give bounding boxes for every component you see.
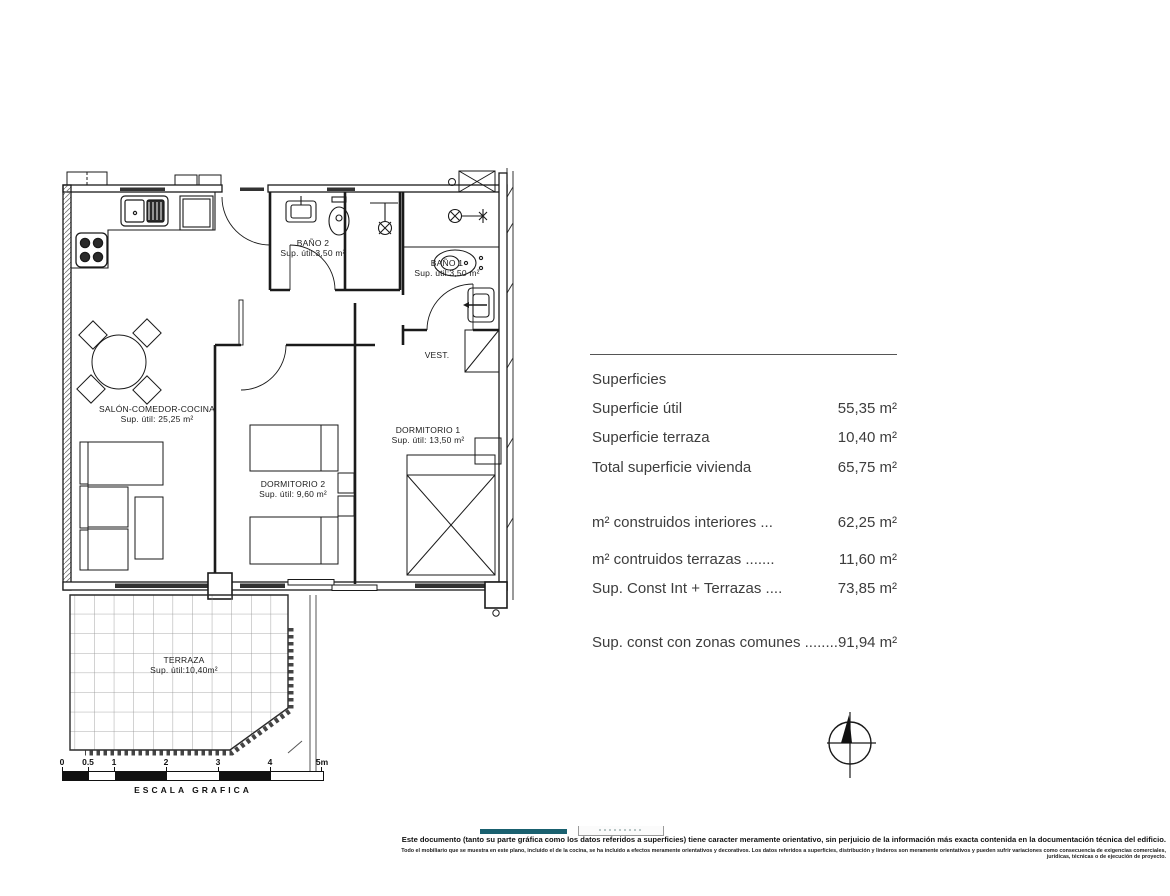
room-label-dormitorio2: DORMITORIO 2 Sup. útil: 9,60 m² — [259, 479, 327, 499]
graphic-scale: 0 0.5 1 2 3 4 5m ESCALA GRAFICA — [62, 757, 324, 799]
kitchen-sink-icon — [121, 196, 168, 226]
disclaimer-line1: Este documento (tanto su parte gráfica c… — [380, 835, 1166, 844]
room-label-terraza: TERRAZA Sup. útil:10,40m² — [150, 655, 218, 675]
table-row: m² construidos interiores ... 62,25 m² — [592, 514, 897, 531]
surfaces-table: Superficies Superficie útil 55,35 m² Sup… — [590, 352, 897, 662]
table-row: Total superficie vivienda 65,75 m² — [592, 459, 897, 476]
table-top-rule — [590, 354, 897, 355]
north-arrow-icon — [815, 700, 895, 785]
table-row: Sup. const con zonas comunes ........ 91… — [592, 634, 897, 651]
room-label-vestibulo: VEST. — [425, 350, 450, 360]
dining-table-icon — [77, 319, 161, 404]
stove-icon — [76, 233, 107, 267]
room-label-bano1: BAÑO 1 Sup. útil:3,50 m² — [414, 258, 479, 278]
exterior-edge-right — [507, 168, 513, 600]
terrace — [70, 595, 316, 775]
doors — [222, 197, 473, 390]
scale-bar — [62, 771, 324, 781]
exterior-closets — [67, 172, 221, 185]
bath2-fixtures-icon — [286, 196, 349, 235]
room-label-salon: SALÓN-COMEDOR-COCINA Sup. útil: 25,25 m² — [99, 404, 215, 424]
surfaces-title: Superficies — [592, 371, 666, 388]
table-row: m² contruidos terrazas ....... 11,60 m² — [592, 551, 897, 568]
table-row: Superficie útil 55,35 m² — [592, 400, 897, 417]
scale-caption: ESCALA GRAFICA — [62, 785, 324, 795]
dorm1-bed-icon — [407, 330, 501, 575]
shower-icon — [370, 203, 398, 235]
sofa-icon — [80, 442, 163, 570]
fridge-icon — [180, 196, 213, 230]
room-label-dormitorio1: DORMITORIO 1 Sup. útil: 13,50 m² — [392, 425, 465, 445]
table-row: Sup. Const Int + Terrazas .... 73,85 m² — [592, 580, 897, 597]
table-row: Superficie terraza 10,40 m² — [592, 429, 897, 446]
disclaimer-line2: Todo el mobiliario que se muestra en est… — [380, 848, 1166, 860]
room-label-bano2: BAÑO 2 Sup. útil:3,50 m² — [280, 238, 345, 258]
interior-walls — [215, 192, 499, 584]
brand-accent-bar — [480, 829, 567, 834]
outer-walls — [63, 173, 507, 590]
